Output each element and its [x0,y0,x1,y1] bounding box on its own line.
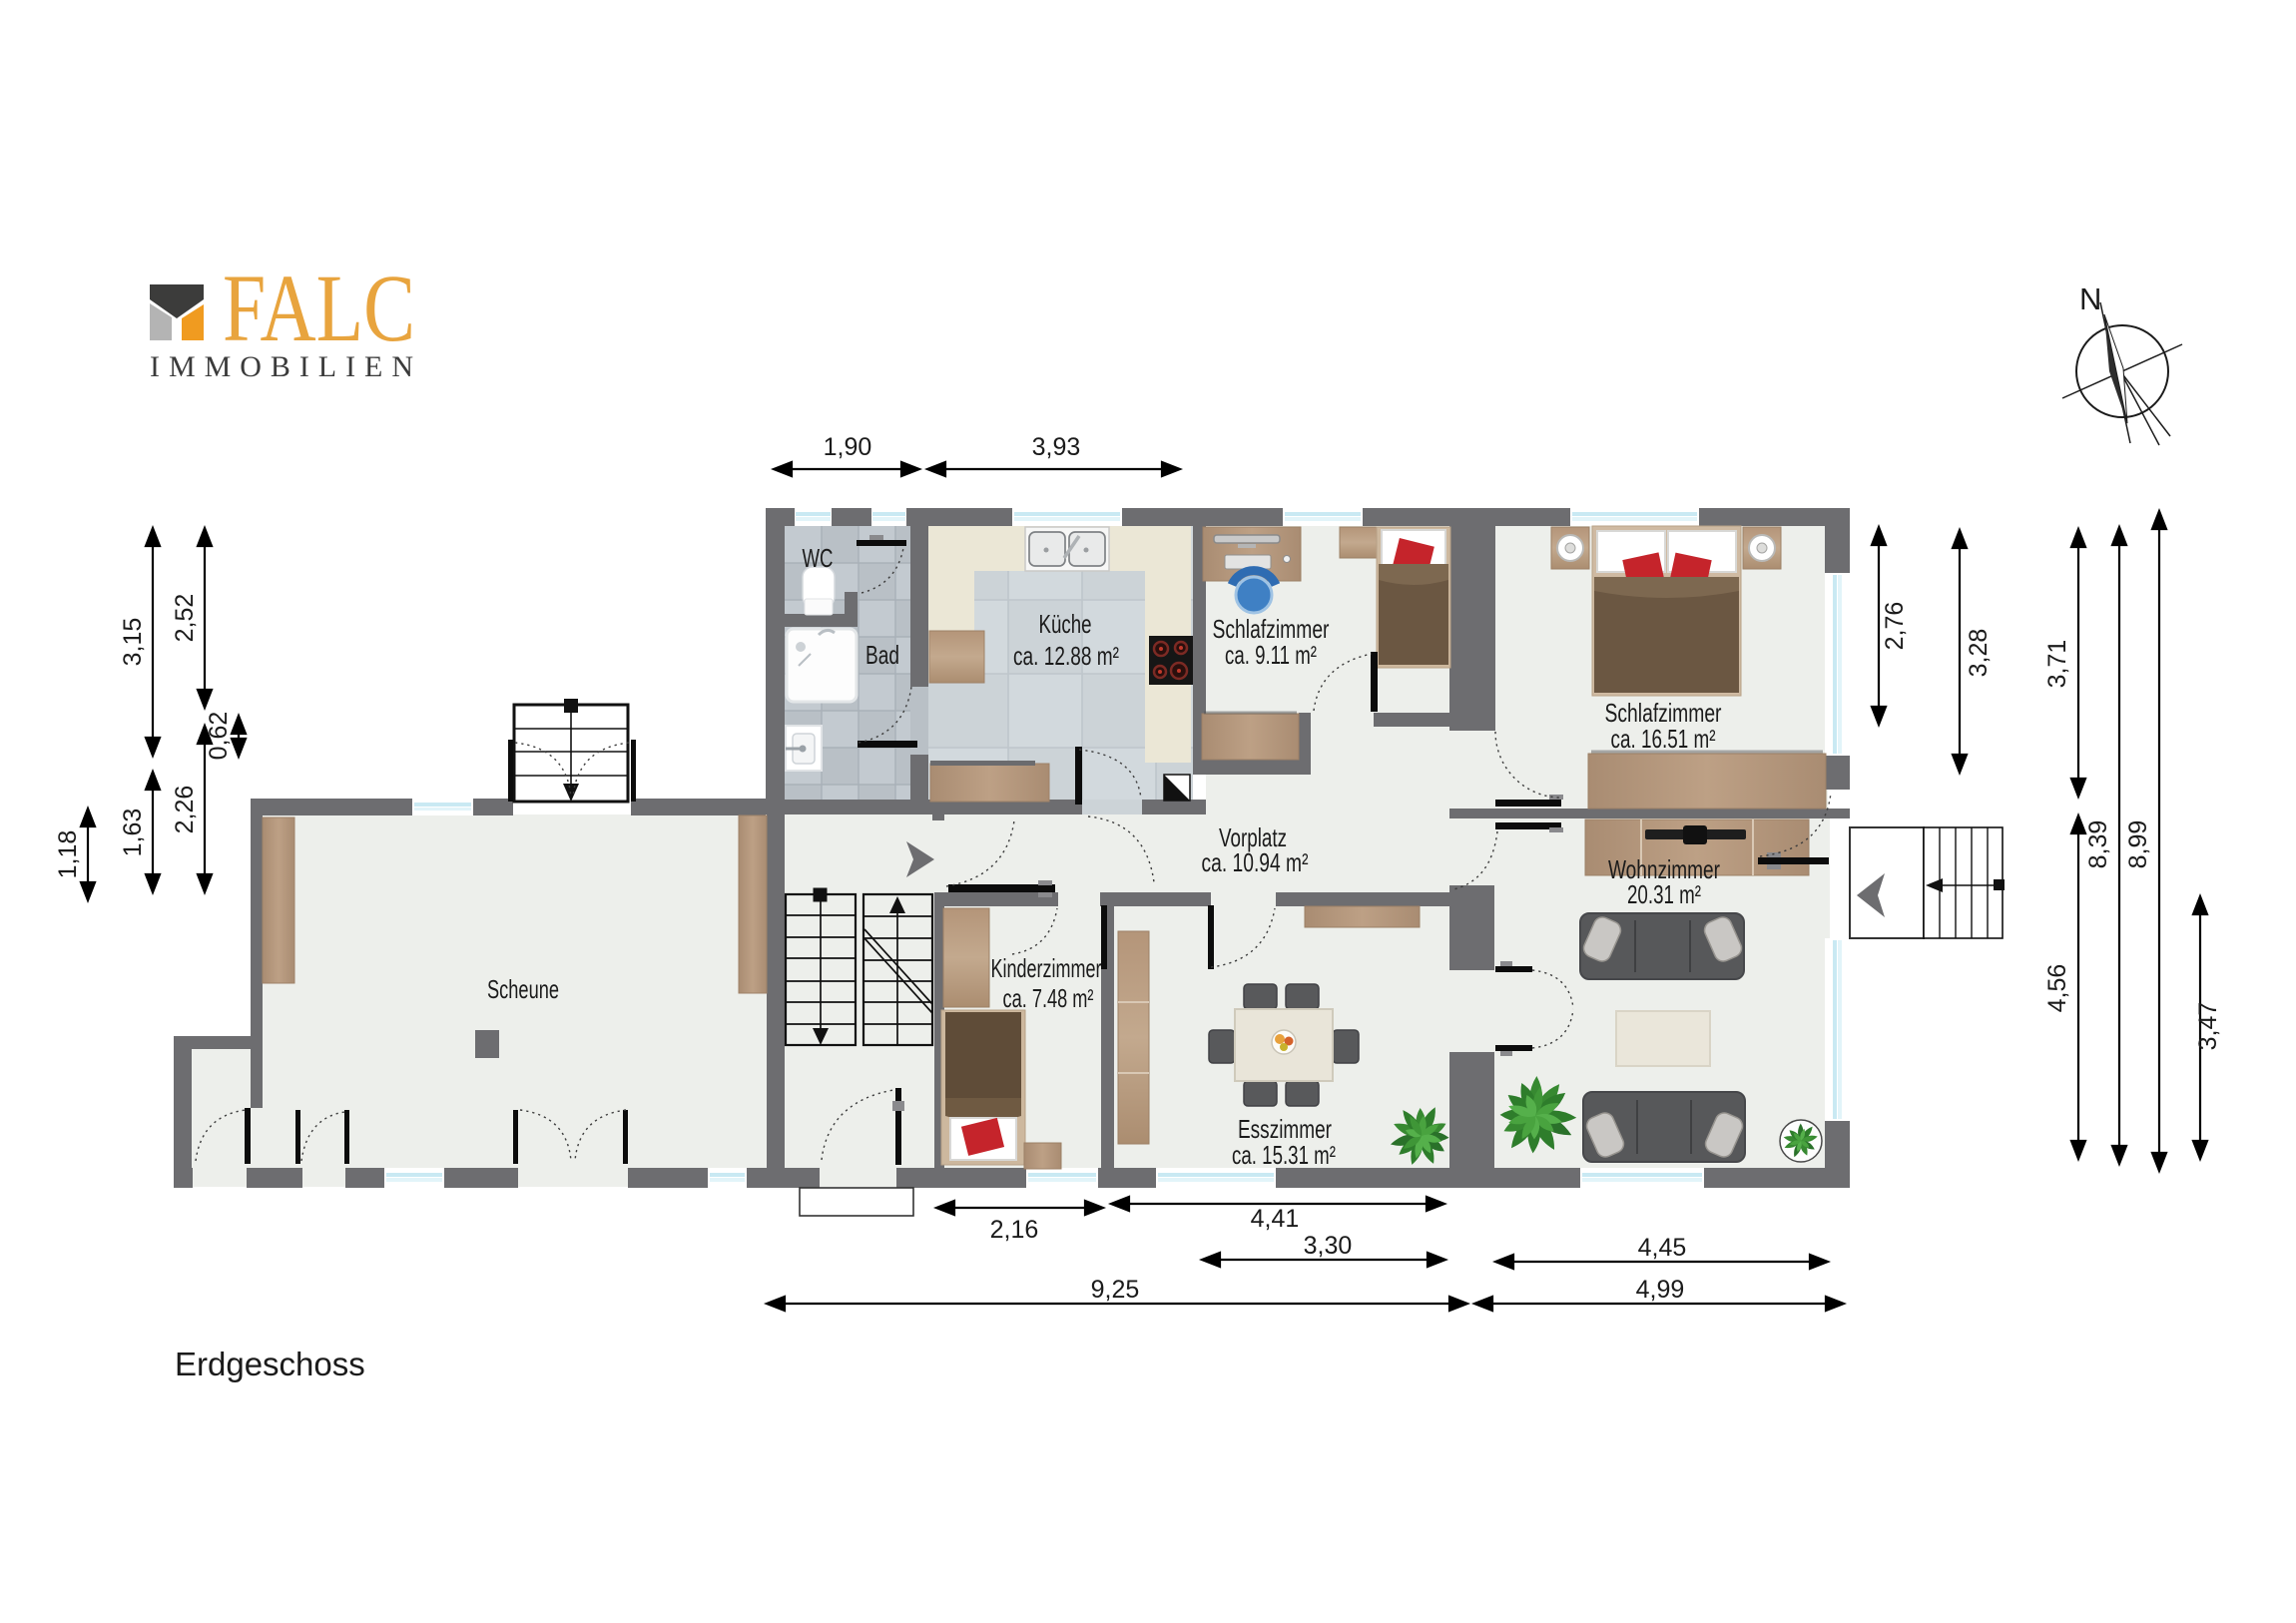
svg-text:2,52: 2,52 [171,594,199,643]
svg-text:2,76: 2,76 [1881,602,1909,651]
svg-text:4,56: 4,56 [2043,964,2071,1013]
svg-text:ca. 7.48 m²: ca. 7.48 m² [1003,983,1094,1013]
svg-text:4,41: 4,41 [1251,1205,1300,1233]
svg-text:3,30: 3,30 [1304,1232,1353,1260]
svg-text:Erdgeschoss: Erdgeschoss [175,1346,365,1382]
svg-text:Scheune: Scheune [487,974,559,1004]
svg-text:ca. 16.51 m²: ca. 16.51 m² [1611,724,1716,754]
svg-text:1,18: 1,18 [54,830,82,879]
svg-text:3,15: 3,15 [119,618,147,667]
svg-text:N: N [2079,281,2101,316]
svg-text:20.31 m²: 20.31 m² [1627,879,1701,909]
svg-text:9,25: 9,25 [1091,1276,1140,1304]
svg-text:IMMOBILIEN: IMMOBILIEN [150,350,413,383]
svg-text:Bad: Bad [865,640,899,670]
svg-text:4,45: 4,45 [1638,1234,1687,1262]
svg-text:2,16: 2,16 [990,1216,1039,1244]
svg-text:FALC: FALC [223,255,415,361]
svg-text:3,71: 3,71 [2043,640,2071,689]
svg-text:3,28: 3,28 [1965,629,1993,678]
svg-text:8,39: 8,39 [2084,820,2112,869]
svg-text:WC: WC [803,543,834,573]
svg-text:4,99: 4,99 [1636,1276,1685,1304]
svg-text:ca. 9.11 m²: ca. 9.11 m² [1225,640,1317,670]
svg-text:1,90: 1,90 [824,433,872,461]
svg-text:ca. 12.88 m²: ca. 12.88 m² [1013,641,1119,671]
svg-text:8,99: 8,99 [2124,820,2152,869]
svg-text:1,63: 1,63 [119,809,147,857]
svg-text:2,26: 2,26 [171,786,199,834]
svg-text:Küche: Küche [1039,609,1092,639]
svg-text:3,47: 3,47 [2194,1002,2222,1051]
svg-text:ca. 10.94 m²: ca. 10.94 m² [1202,847,1309,877]
svg-text:3,93: 3,93 [1032,433,1081,461]
svg-text:0,62: 0,62 [205,712,233,761]
svg-text:ca. 15.31 m²: ca. 15.31 m² [1232,1140,1336,1170]
svg-text:Kinderzimmer: Kinderzimmer [991,953,1102,983]
